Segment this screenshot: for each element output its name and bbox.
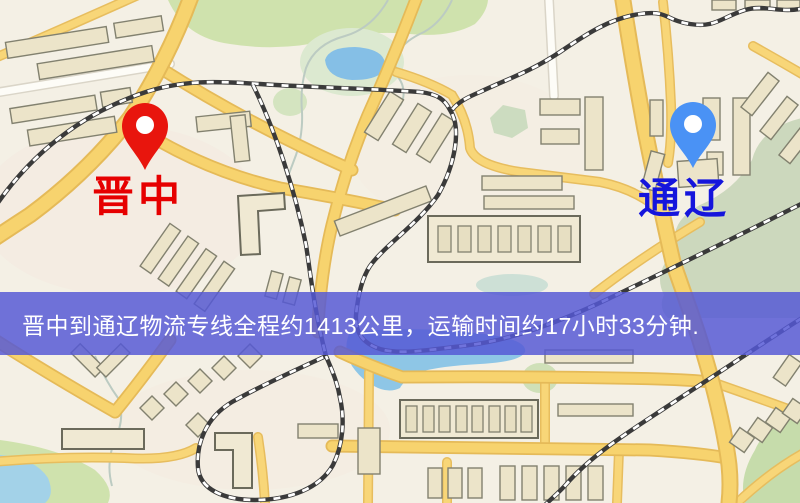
map-canvas[interactable] <box>0 0 800 503</box>
route-banner-text: 晋中到通辽物流专线全程约1413公里，运输时间约17小时33分钟. <box>22 307 699 341</box>
origin-label: 晋中 <box>92 176 184 218</box>
route-banner: 晋中到通辽物流专线全程约1413公里，运输时间约17小时33分钟. <box>0 292 800 355</box>
destination-label: 通辽 <box>638 178 730 220</box>
map-screenshot: 晋中 通辽 晋中到通辽物流专线全程约1413公里，运输时间约17小时33分钟. <box>0 0 800 503</box>
origin-pin-hole <box>136 116 154 134</box>
destination-pin-hole <box>684 115 702 133</box>
